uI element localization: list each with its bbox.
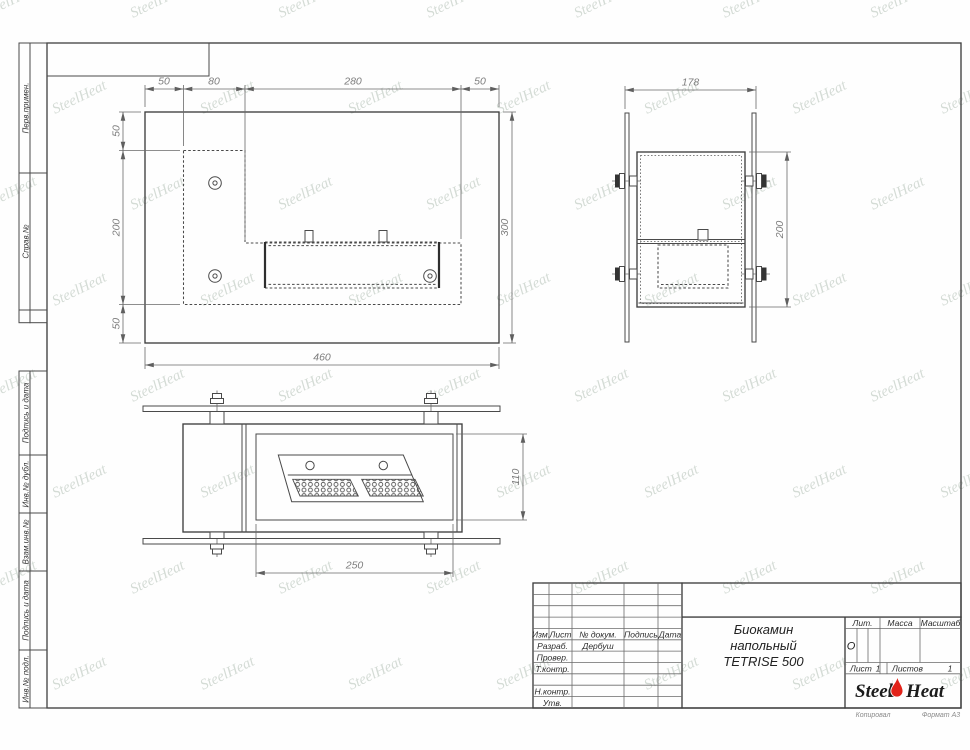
watermark-text: SteelHeat: [720, 365, 780, 405]
dim-label: 110: [510, 468, 522, 485]
watermark-text: SteelHeat: [938, 269, 970, 309]
copied-label: Копировал: [856, 712, 891, 719]
watermark-text: SteelHeat: [128, 173, 188, 213]
sidebar-label: Инв.№ подл.: [22, 655, 31, 702]
logo-heat-text: Heat: [905, 681, 945, 702]
watermark-text: SteelHeat: [720, 0, 780, 22]
burner-slot-sides: [265, 242, 439, 288]
screw-hole: [209, 270, 222, 283]
watermark-text: SteelHeat: [424, 557, 484, 597]
col-header-izm: Изм.: [532, 630, 550, 640]
watermark-text: SteelHeat: [868, 365, 928, 405]
watermark-text: SteelHeat: [198, 461, 258, 501]
perforation-grid-left: [293, 479, 359, 496]
developer-name: Дербуш: [581, 641, 613, 651]
watermark-layer: SteelHeatSteelHeatSteelHeatSteelHeatStee…: [0, 0, 970, 694]
drawing-sheet: SteelHeatSteelHeatSteelHeatSteelHeatStee…: [0, 0, 970, 750]
watermark-text: SteelHeat: [938, 461, 970, 501]
watermark-text: SteelHeat: [938, 77, 970, 117]
sidebar-label: Инв.№ дубл.: [22, 461, 31, 508]
watermark-text: SteelHeat: [790, 77, 850, 117]
row-tkontr: Т.контр.: [535, 664, 569, 674]
top-view-dimensions: 50 80 280 50 50 200 50 460 300: [111, 76, 517, 370]
sheets-num: 1: [948, 663, 953, 673]
watermark-text: SteelHeat: [868, 557, 928, 597]
watermark-text: SteelHeat: [276, 0, 336, 22]
dim-label: 300: [499, 219, 511, 237]
glass-panel-right: [752, 113, 756, 342]
burner-plate: [278, 455, 423, 502]
watermark-text: SteelHeat: [790, 269, 850, 309]
glass-panel-left: [625, 113, 629, 342]
col-header-sign: Подпись: [624, 630, 658, 640]
sidebar-label: Справ.№: [22, 224, 31, 258]
watermark-text: SteelHeat: [868, 0, 928, 22]
watermark-text: SteelHeat: [128, 365, 188, 405]
dim-label: 50: [111, 318, 123, 330]
watermark-text: SteelHeat: [494, 77, 554, 117]
watermark-text: SteelHeat: [50, 653, 110, 693]
screw-hole: [209, 177, 222, 190]
lit-label: Лит.: [852, 618, 873, 628]
watermark-text: SteelHeat: [868, 173, 928, 213]
watermark-text: SteelHeat: [346, 653, 406, 693]
watermark-text: SteelHeat: [128, 0, 188, 22]
watermark-text: SteelHeat: [572, 0, 632, 22]
watermark-text: SteelHeat: [346, 269, 406, 309]
dim-label: 50: [474, 76, 486, 88]
watermark-text: SteelHeat: [790, 461, 850, 501]
sheet-num: 1: [876, 663, 881, 673]
sheets-label: Листов: [891, 663, 924, 673]
sidebar-label: Взам.инв.№: [22, 519, 31, 564]
dim-label: 50: [111, 125, 123, 137]
col-header-list: Лист: [549, 630, 572, 640]
watermark-text: SteelHeat: [276, 365, 336, 405]
glass-panel-top: [143, 406, 500, 412]
burner-tab: [305, 231, 313, 243]
watermark-text: SteelHeat: [50, 461, 110, 501]
dim-label: 280: [343, 76, 362, 88]
dim-label: 50: [158, 76, 170, 88]
steelheat-logo: Steel Heat: [855, 676, 945, 702]
watermark-text: SteelHeat: [572, 365, 632, 405]
sidebar-label: Подпись и дата: [22, 580, 31, 641]
col-header-date: Дата: [658, 630, 682, 640]
watermark-text: SteelHeat: [572, 557, 632, 597]
bolt: [210, 532, 224, 557]
row-utv: Утв.: [542, 698, 562, 708]
watermark-text: SteelHeat: [0, 557, 40, 597]
watermark-text: SteelHeat: [276, 557, 336, 597]
watermark-text: SteelHeat: [642, 461, 702, 501]
side-view: 178 200: [612, 77, 791, 343]
row-nkontr: Н.контр.: [535, 687, 571, 697]
perforation-grid-right: [362, 479, 424, 496]
bolt: [424, 532, 438, 557]
watermark-text: SteelHeat: [0, 0, 40, 22]
row-razrab: Разраб.: [537, 641, 568, 651]
glass-panel-bottom: [143, 539, 500, 545]
mass-label: Масса: [887, 618, 912, 628]
dim-label: 200: [774, 221, 786, 240]
doc-title-line3: TETRISE 500: [723, 654, 804, 669]
dim-label: 200: [111, 219, 123, 238]
watermark-text: SteelHeat: [128, 557, 188, 597]
blueprint-canvas: SteelHeatSteelHeatSteelHeatSteelHeatStee…: [0, 0, 970, 750]
scale-label: Масштаб: [921, 618, 962, 628]
front-view: 250 110: [143, 391, 527, 578]
format-label: Формат А3: [922, 712, 960, 719]
burner-tab: [698, 230, 708, 241]
lit-value: О: [847, 641, 856, 653]
burner-slot-hidden-edges: [265, 242, 439, 288]
sheet-label: Лист: [849, 663, 872, 673]
flame-icon: [888, 676, 903, 697]
title-block: Изм. Лист № докум. Подпись Дата Разраб. …: [532, 583, 962, 719]
burner-tab: [379, 231, 387, 243]
dim-label: 80: [208, 76, 220, 88]
watermark-text: SteelHeat: [424, 173, 484, 213]
dim-label: 250: [345, 560, 364, 572]
watermark-text: SteelHeat: [0, 173, 40, 213]
watermark-text: SteelHeat: [276, 173, 336, 213]
top-left-stamp-box: [47, 43, 209, 76]
col-header-doc: № докум.: [579, 630, 616, 640]
doc-title-line1: Биокамин: [734, 622, 794, 637]
watermark-text: SteelHeat: [720, 557, 780, 597]
watermark-text: SteelHeat: [494, 461, 554, 501]
top-view-glass-outline: [145, 112, 499, 343]
top-view: 50 80 280 50 50 200 50 460 300: [111, 76, 517, 370]
watermark-text: SteelHeat: [198, 269, 258, 309]
sidebar-label: Подпись и дата: [22, 382, 31, 443]
doc-title-line2: напольный: [730, 638, 796, 653]
row-prover: Провер.: [537, 653, 569, 663]
watermark-text: SteelHeat: [198, 653, 258, 693]
dim-label: 460: [313, 352, 331, 364]
watermark-text: SteelHeat: [50, 269, 110, 309]
logo-steel-text: Steel: [855, 681, 894, 702]
watermark-text: SteelHeat: [424, 0, 484, 22]
dim-label: 178: [682, 77, 700, 89]
watermark-text: SteelHeat: [494, 269, 554, 309]
sidebar-label: Перв.примен.: [22, 83, 31, 134]
screw-hole: [424, 270, 437, 283]
watermark-text: SteelHeat: [50, 77, 110, 117]
